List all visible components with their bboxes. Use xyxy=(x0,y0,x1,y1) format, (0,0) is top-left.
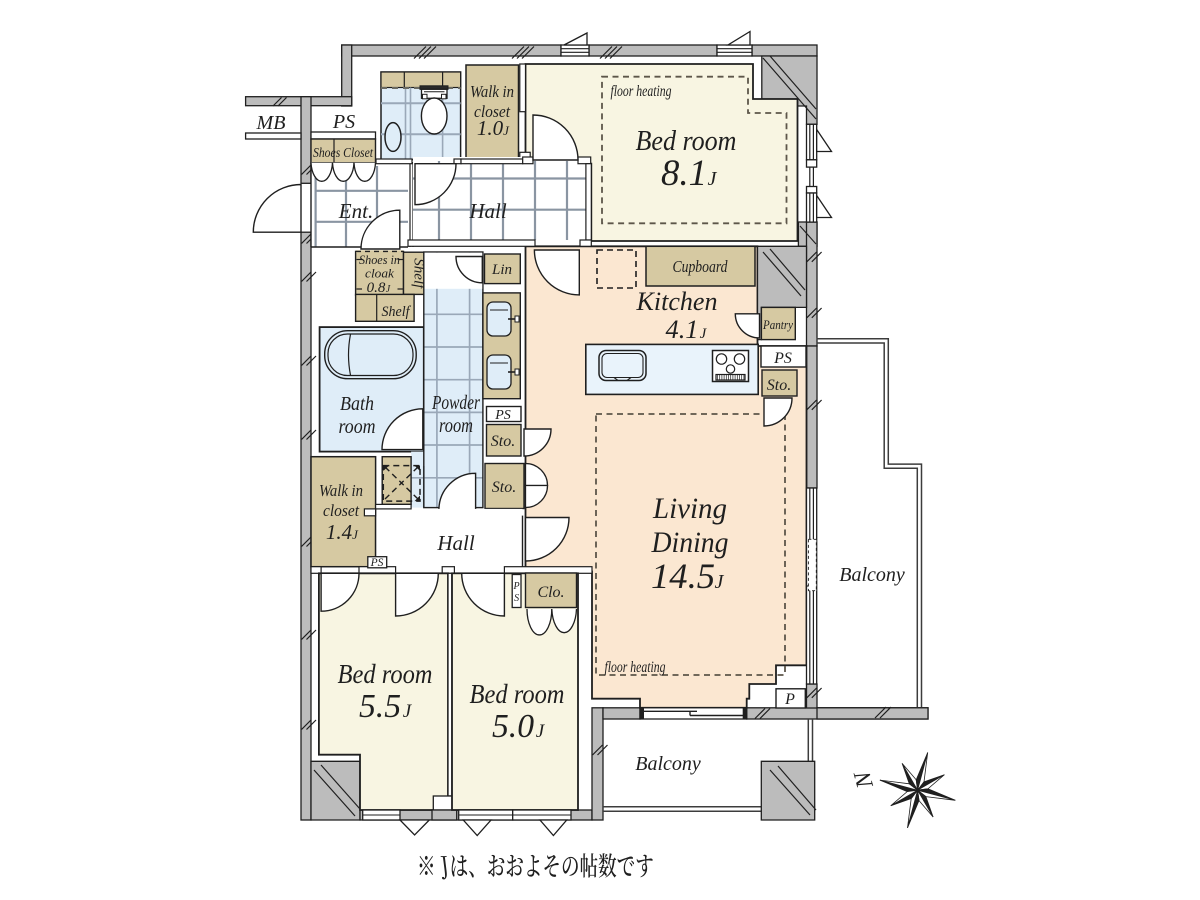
svg-text:Shoes Closet: Shoes Closet xyxy=(313,145,374,160)
svg-text:Clo.: Clo. xyxy=(537,584,564,601)
svg-text:Bed room: Bed room xyxy=(338,659,433,689)
svg-text:PS: PS xyxy=(494,408,511,423)
svg-text:Sto.: Sto. xyxy=(491,433,515,450)
svg-text:PS: PS xyxy=(370,557,384,569)
svg-text:Sto.: Sto. xyxy=(492,479,516,496)
svg-text:room: room xyxy=(439,415,473,437)
svg-text:P: P xyxy=(784,691,795,708)
svg-text:Cupboard: Cupboard xyxy=(673,257,728,276)
svg-text:PS: PS xyxy=(332,111,355,133)
svg-text:cloak: cloak xyxy=(365,266,394,281)
svg-text:S: S xyxy=(514,593,519,604)
svg-text:14.5: 14.5 xyxy=(651,556,715,596)
svg-text:Hall: Hall xyxy=(468,199,507,223)
svg-text:Lin: Lin xyxy=(491,262,512,278)
svg-text:Powder: Powder xyxy=(431,392,480,414)
svg-text:Balcony: Balcony xyxy=(839,564,905,586)
svg-text:1.4: 1.4 xyxy=(326,520,353,544)
svg-text:J: J xyxy=(386,284,391,295)
svg-text:Kitchen: Kitchen xyxy=(635,287,717,316)
svg-text:MB: MB xyxy=(256,112,286,134)
svg-text:Bath: Bath xyxy=(340,393,374,415)
svg-text:J: J xyxy=(708,168,718,190)
svg-text:4.1: 4.1 xyxy=(666,315,699,344)
svg-text:Walk in: Walk in xyxy=(470,82,514,101)
svg-text:0.8: 0.8 xyxy=(367,280,386,296)
svg-text:5.0: 5.0 xyxy=(492,708,534,745)
svg-text:closet: closet xyxy=(323,501,360,520)
svg-text:floor heating: floor heating xyxy=(611,83,672,100)
svg-text:Living: Living xyxy=(652,492,727,525)
svg-text:room: room xyxy=(339,416,376,438)
svg-text:Dining: Dining xyxy=(651,526,729,559)
svg-text:Hall: Hall xyxy=(436,531,475,555)
svg-text:Bed room: Bed room xyxy=(470,679,565,709)
svg-text:Sto.: Sto. xyxy=(767,377,791,394)
svg-text:J: J xyxy=(715,571,725,593)
svg-text:Pantry: Pantry xyxy=(762,317,793,332)
svg-text:1.0: 1.0 xyxy=(477,116,504,140)
svg-text:5.5: 5.5 xyxy=(359,688,401,725)
svg-text:floor heating: floor heating xyxy=(605,659,666,676)
svg-text:PS: PS xyxy=(773,350,792,367)
svg-text:Balcony: Balcony xyxy=(635,753,701,775)
svg-text:8.1: 8.1 xyxy=(661,153,707,194)
svg-text:Walk in: Walk in xyxy=(319,481,363,500)
svg-text:Shelf: Shelf xyxy=(382,304,412,320)
svg-text:Ent.: Ent. xyxy=(338,199,373,223)
svg-text:P: P xyxy=(513,581,520,592)
